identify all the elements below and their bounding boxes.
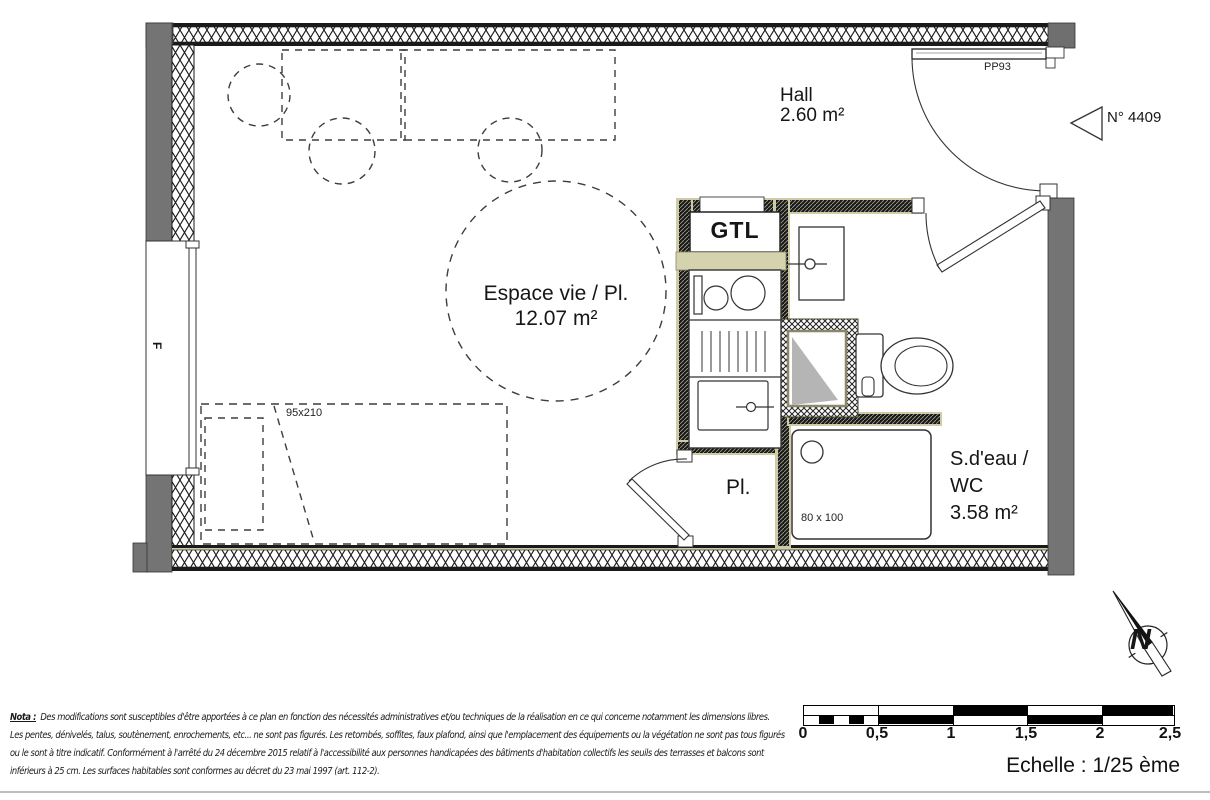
door-leaf [937, 201, 1045, 272]
closet-label: Pl. [726, 476, 751, 500]
room-area: 2.60 m² [780, 106, 844, 126]
scale-tick: 1 [947, 725, 956, 743]
floor-plan-page: Hall 2.60 m² Espace vie / Pl. 12.07 m² G… [0, 0, 1210, 800]
closet-door [627, 450, 693, 547]
room-name: WC [950, 473, 1028, 500]
bed-headboard [205, 418, 263, 530]
technical-duct [777, 319, 858, 417]
scale-tick: 2 [1096, 725, 1105, 743]
door-leaf [627, 479, 689, 540]
door-swing [912, 57, 1046, 191]
washbasin [788, 227, 844, 300]
door-swing [926, 213, 939, 268]
shower-dimension-label: 80 x 100 [801, 512, 843, 524]
kitchen-faucet [747, 403, 756, 412]
toilet-flush [862, 377, 874, 396]
door-leaf [912, 49, 1046, 59]
page-border [0, 791, 1210, 793]
scale-caption: Echelle : 1/25 ème [975, 754, 1180, 778]
bed-outline [201, 404, 507, 544]
living-room-label: Espace vie / Pl. 12.07 m² [446, 281, 666, 331]
wardrobe-top-right [401, 50, 615, 140]
window-f [146, 241, 199, 475]
north-label: N [1130, 624, 1151, 657]
room-name: Hall [780, 86, 844, 106]
window-glazing [189, 246, 196, 470]
scale-tick: 0,5 [866, 725, 888, 743]
scale-tick: 1,5 [1015, 725, 1037, 743]
bathroom-label: S.d'eau / WC 3.58 m² [950, 446, 1028, 527]
unit-ref-label: N° 4409 [1107, 109, 1161, 126]
scale-tick: 0 [799, 725, 808, 743]
bed-dimension-label: 95x210 [286, 407, 322, 419]
room-name: Espace vie / Pl. [446, 281, 666, 306]
wardrobe-top-left [282, 50, 405, 140]
hall-room-label: Hall 2.60 m² [780, 86, 844, 126]
floor-plan-drawing [0, 0, 1210, 800]
entrance-marker-icon [1071, 107, 1102, 140]
nota-line: inférieurs à 25 cm. Les surfaces habitab… [10, 766, 379, 777]
nota-line: ou le sont à titre indicatif. Conforméme… [10, 748, 764, 759]
chair-circle-2 [309, 118, 375, 184]
chair-circle-3 [478, 118, 542, 182]
kitchen-worktop-band [676, 252, 786, 270]
chair-circle-1 [228, 64, 290, 126]
bathroom-door [912, 196, 1050, 272]
room-area: 3.58 m² [950, 500, 1028, 527]
nota-text: Des modifications sont susceptibles d'êt… [40, 712, 769, 723]
scale-bar [803, 705, 1175, 726]
nota-line: Les pentes, dénivelés, talus, soutènemen… [10, 730, 785, 741]
nota-prefix: Nota : [10, 712, 36, 723]
room-name: S.d'eau / [950, 446, 1028, 473]
nota-line: Nota :Des modifications sont susceptible… [10, 712, 770, 723]
basin-faucet [805, 259, 815, 269]
bed-diagonal [274, 406, 313, 538]
wall-cap-top-right [1048, 23, 1075, 48]
room-area: 12.07 m² [446, 306, 666, 331]
entrance-door-ref-label: PP93 [984, 61, 1011, 73]
scale-tick: 2,5 [1159, 725, 1181, 743]
kitchenette [689, 270, 781, 448]
wall-right [1048, 198, 1074, 575]
gtl-label: GTL [690, 217, 780, 244]
wall-step-bottom-left [133, 543, 147, 572]
toilet [856, 334, 953, 397]
window-ref-label: F [150, 342, 164, 349]
gtl-opening [700, 197, 764, 212]
